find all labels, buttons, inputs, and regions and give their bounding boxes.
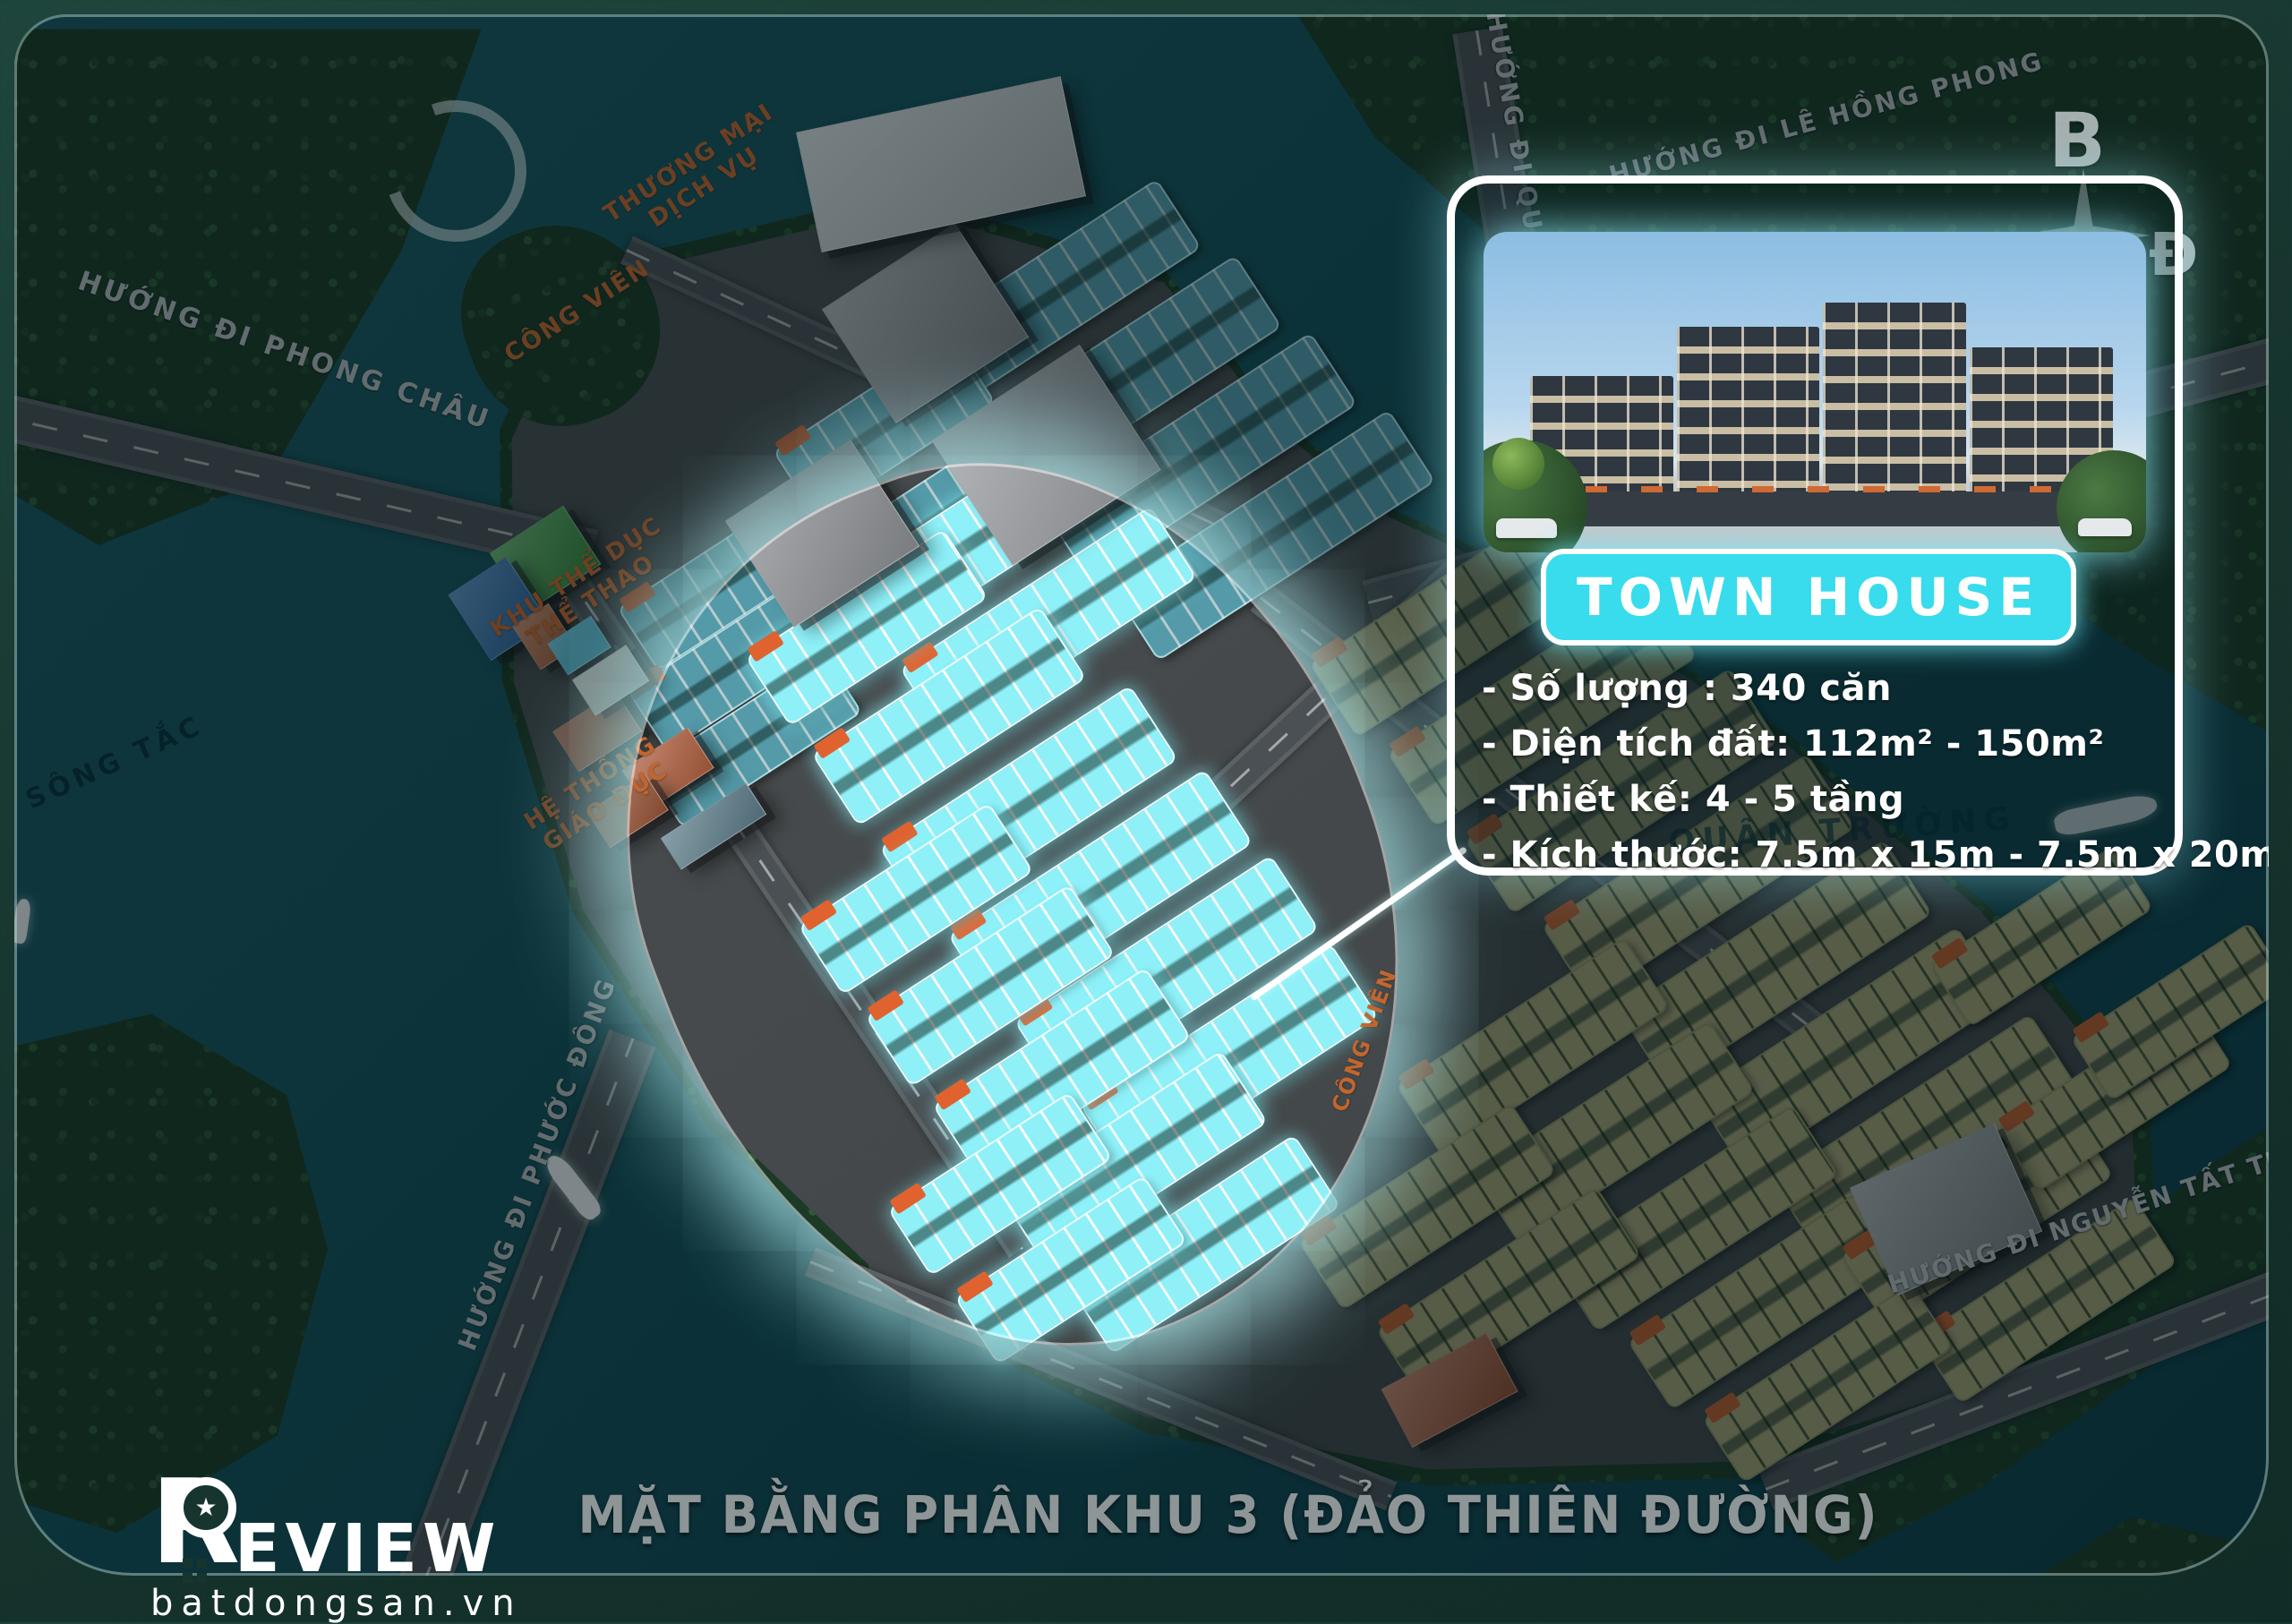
map-panel: SÔNG TẮCQUÂN TRƯỜNGHƯỚNG ĐI PHONG CHÂUHƯ… bbox=[14, 14, 2269, 1576]
area-label: KHU THỂ DỤC THỂ THAO bbox=[485, 512, 682, 666]
spec-item-quantity: - Số lượng : 340 căn bbox=[1482, 667, 2160, 710]
map-world: SÔNG TẮCQUÂN TRƯỜNGHƯỚNG ĐI PHONG CHÂUHƯ… bbox=[14, 14, 2269, 1576]
logo-r-house-icon: R ★ bbox=[150, 1475, 235, 1579]
spec-list: - Số lượng : 340 căn - Diện tích đất: 11… bbox=[1482, 667, 2160, 889]
info-card: TOWN HOUSE - Số lượng : 340 căn - Diện t… bbox=[1447, 175, 2183, 876]
masterplan-poster: { "footer": { "title": "MẶT BẰNG PHÂN KH… bbox=[0, 0, 2292, 1622]
area-label: CÔNG VIÊN bbox=[500, 254, 655, 370]
brand-logo: R ★ EVIEW batdongsan.vn bbox=[150, 1475, 523, 1624]
spec-item-land-area: - Diện tích đất: 112m² - 150m² bbox=[1482, 722, 2160, 765]
photo-car-right bbox=[2078, 518, 2132, 536]
road-label: HƯỚNG ĐI PHƯỚC ĐÔNG bbox=[452, 973, 622, 1355]
logo-wordmark: EVIEW bbox=[235, 1518, 501, 1579]
townhouse-podium bbox=[1530, 491, 2113, 526]
townhouse-photo bbox=[1484, 232, 2146, 552]
magnifier-star-icon: ★ bbox=[175, 1477, 236, 1538]
photo-car-left bbox=[1496, 518, 1557, 538]
spec-item-design: - Thiết kế: 4 - 5 tầng bbox=[1482, 778, 2160, 821]
road-label: HƯỚNG ĐI LÊ HỒNG PHONG bbox=[1606, 46, 2048, 191]
road-label: HƯỚNG ĐI NGUYỄN TẤT THÀNH bbox=[1884, 1121, 2269, 1299]
area-label: THƯƠNG MẠI DỊCH VỤ bbox=[599, 98, 794, 253]
plan-title: MẶT BẰNG PHÂN KHU 3 (ĐẢO THIÊN ĐƯỜNG) bbox=[578, 1484, 1879, 1545]
spec-item-dimensions: - Kích thước: 7.5m x 15m - 7.5m x 20m bbox=[1482, 833, 2160, 876]
photo-tree-small bbox=[1492, 438, 1544, 490]
compass-north-label: B bbox=[2048, 97, 2106, 184]
water-label: SÔNG TẮC bbox=[21, 710, 209, 816]
house-windows-icon bbox=[183, 1559, 192, 1568]
road-label: HƯỚNG ĐI PHONG CHÂU bbox=[74, 265, 496, 436]
townhouse-badge: TOWN HOUSE bbox=[1541, 549, 2076, 645]
townhouse-building-render bbox=[1530, 303, 2113, 508]
